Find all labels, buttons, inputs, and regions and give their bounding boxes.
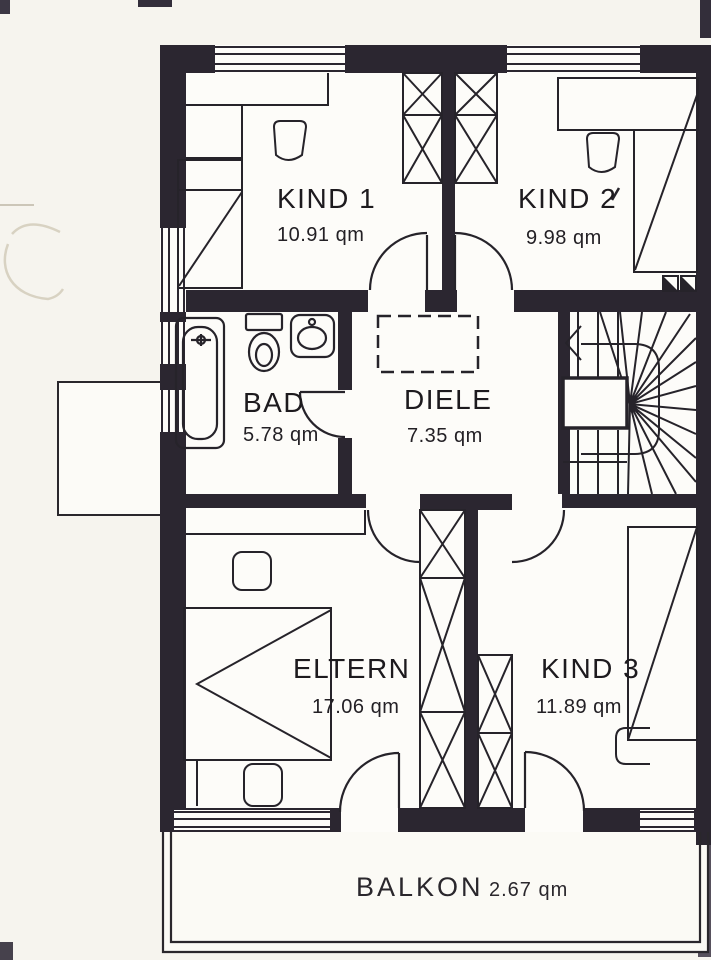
room-label-bad: BAD	[243, 387, 305, 418]
window-top-left	[215, 45, 345, 73]
window-top-right	[507, 45, 640, 73]
room-label-eltern: ELTERN	[293, 653, 410, 684]
room-area-diele: 7.35 qm	[407, 425, 483, 447]
room-label-kind2: KIND 2	[518, 183, 617, 214]
room-area-bad: 5.78 qm	[243, 424, 319, 446]
window-bottom-kind3	[640, 810, 694, 830]
window-bottom-eltern	[174, 810, 330, 830]
floor-plan-drawing: KIND 1 10.91 qm KIND 2 9.98 qm BAD 5.78 …	[0, 0, 711, 960]
floorplan-scan: KIND 1 10.91 qm KIND 2 9.98 qm BAD 5.78 …	[0, 0, 711, 960]
window-left-kind1	[160, 228, 186, 312]
room-area-kind1: 10.91 qm	[277, 224, 364, 246]
room-label-kind1: KIND 1	[277, 183, 376, 214]
room-area-kind3: 11.89 qm	[536, 696, 622, 718]
wall-right	[696, 45, 711, 845]
room-label-diele: DIELE	[404, 384, 492, 415]
room-area-eltern: 17.06 qm	[312, 696, 399, 718]
wall-left	[160, 45, 186, 832]
room-label-balkon: BALKON	[356, 872, 484, 902]
stair-well	[563, 378, 627, 428]
shaft-wall-top	[442, 73, 455, 290]
exterior-annex	[58, 382, 162, 515]
room-label-kind3: KIND 3	[541, 653, 640, 684]
room-area-kind2: 9.98 qm	[526, 227, 602, 249]
shaft-wall-bottom	[465, 510, 478, 808]
room-area-balkon: 2.67 qm	[489, 879, 568, 901]
